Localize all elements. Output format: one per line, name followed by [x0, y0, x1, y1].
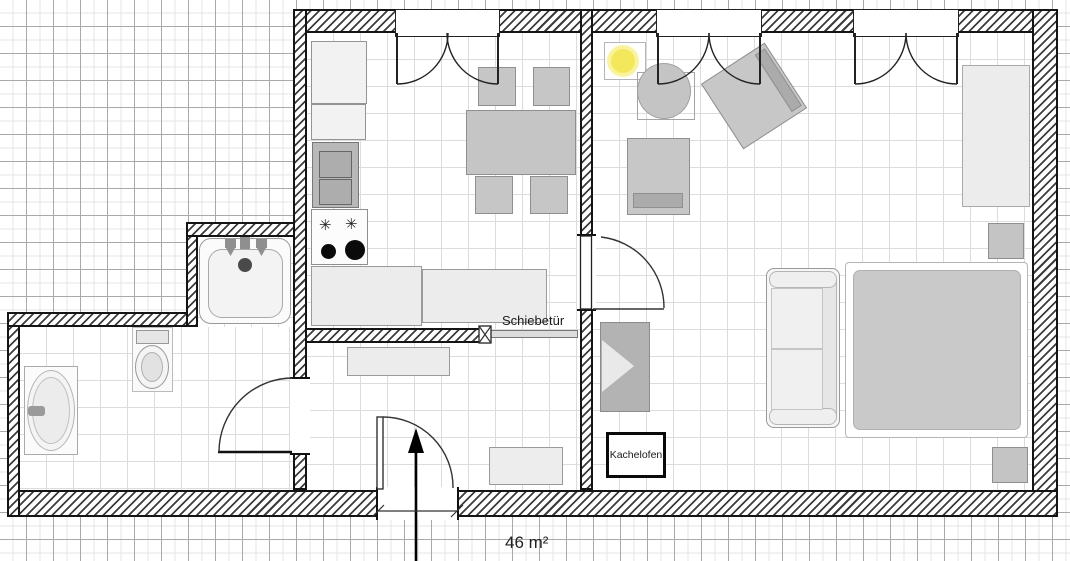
armchair-rotated: [706, 50, 802, 142]
kitchen-counter: [311, 266, 422, 326]
oven-door-bottom: [319, 179, 352, 205]
wall-shower-step: [186, 222, 198, 327]
hotplate-large: [345, 240, 365, 260]
entrance-opening: [376, 487, 459, 520]
tiled-stove-label: Kachelofen: [610, 449, 663, 461]
wall-bathroom-top: [7, 312, 193, 327]
window-bedroom: [853, 9, 959, 37]
wall-right: [1032, 9, 1058, 517]
sofa-armrest: [769, 408, 837, 425]
wall-bathroom-left: [7, 312, 20, 517]
doormat: [489, 447, 563, 485]
sofa-cushion: [771, 349, 823, 410]
window-kitchen: [395, 9, 500, 37]
living-door-opening: [577, 234, 596, 311]
shower-drain: [238, 258, 252, 272]
round-table: [637, 63, 691, 119]
gas-burner-icon: ✳: [319, 218, 332, 233]
window-living: [656, 9, 762, 37]
oven-door-top: [319, 151, 352, 178]
nightstand: [988, 223, 1024, 259]
sofa-cushion: [771, 288, 823, 349]
bathroom-door-opening: [290, 377, 310, 455]
toilet-bowl-inner: [141, 352, 163, 382]
sofa: [766, 268, 840, 428]
wall-bottom: [7, 490, 1058, 517]
dining-table: [466, 110, 576, 175]
bathtub-faucet: [28, 406, 45, 416]
hotplate-small: [321, 244, 336, 259]
dining-chair: [533, 67, 570, 106]
ceiling-lamp: [611, 49, 635, 73]
kitchen-cabinet: [311, 104, 366, 140]
gas-burner-icon: ✳: [345, 217, 358, 232]
sliding-door-leaf: [489, 330, 578, 338]
toilet-tank: [136, 330, 169, 344]
dining-chair: [530, 176, 568, 214]
wall-hall-divider: [305, 328, 485, 343]
fridge: [311, 41, 367, 104]
tiled-stove-box: Kachelofen: [606, 432, 666, 478]
armchair: [627, 138, 690, 215]
armchair-backrest: [633, 193, 683, 208]
sliding-door-label: Schiebetür: [502, 313, 564, 328]
dining-chair: [475, 176, 513, 214]
area-label: 46 m²: [505, 533, 548, 553]
nightstand: [992, 447, 1028, 483]
wall-shower-top: [186, 222, 305, 237]
wardrobe: [962, 65, 1030, 207]
sofa-backrest: [821, 272, 837, 424]
bed-mattress: [853, 270, 1021, 430]
armchair-backrest: [755, 48, 802, 112]
floorplan-canvas: ✳ ✳ Kachelofen: [0, 0, 1070, 561]
hall-sideboard: [347, 347, 450, 376]
dining-chair: [478, 67, 516, 106]
sofa-armrest: [769, 271, 837, 288]
